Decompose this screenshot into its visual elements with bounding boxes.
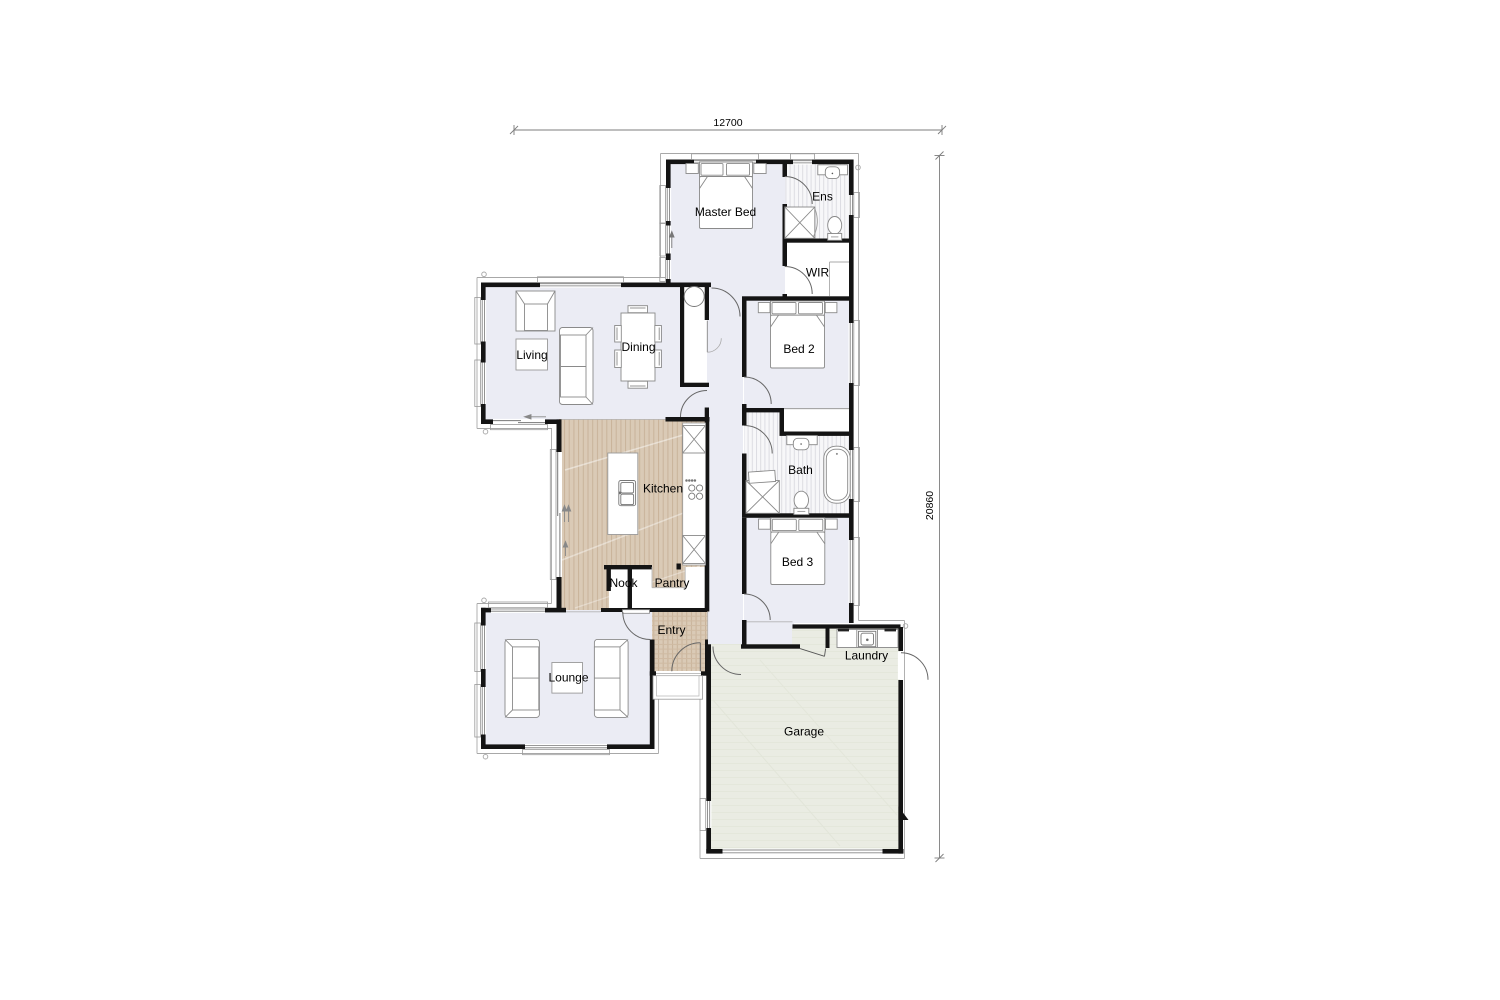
svg-text:Bed 2: Bed 2 — [783, 342, 815, 356]
svg-text:Entry: Entry — [657, 623, 685, 637]
svg-text:Ens: Ens — [812, 190, 833, 204]
svg-text:Laundry: Laundry — [845, 649, 888, 663]
svg-text:Bed 3: Bed 3 — [782, 555, 814, 569]
svg-text:Nook: Nook — [609, 576, 638, 590]
svg-text:WIR: WIR — [806, 266, 830, 280]
svg-text:Lounge: Lounge — [548, 671, 588, 685]
svg-text:12700: 12700 — [713, 117, 742, 129]
svg-text:Pantry: Pantry — [655, 576, 690, 590]
svg-text:20860: 20860 — [924, 491, 936, 520]
svg-text:Garage: Garage — [784, 725, 824, 739]
svg-text:Dining: Dining — [621, 340, 655, 354]
svg-text:Living: Living — [516, 348, 547, 362]
svg-text:Kitchen: Kitchen — [643, 482, 683, 496]
svg-text:Bath: Bath — [788, 463, 813, 477]
svg-text:Master Bed: Master Bed — [695, 205, 756, 219]
